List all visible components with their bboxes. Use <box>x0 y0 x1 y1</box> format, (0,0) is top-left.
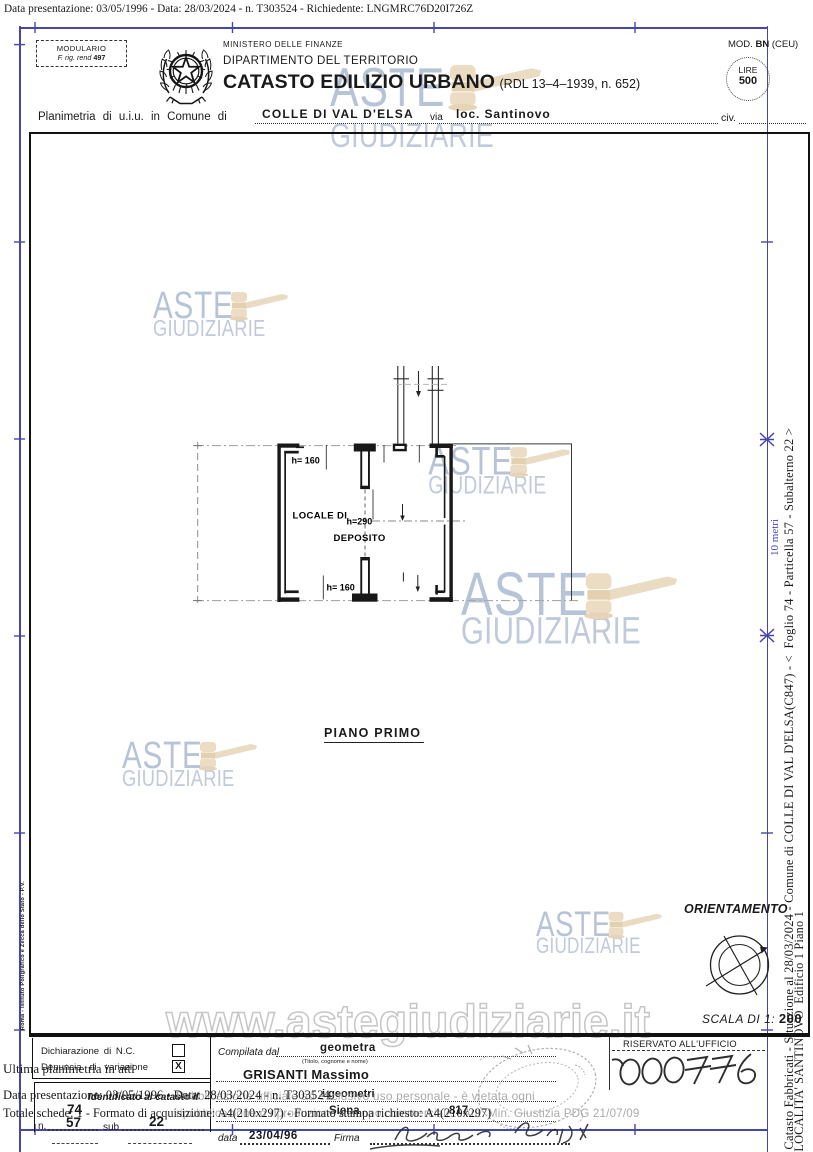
svg-text:h= 160: h= 160 <box>292 456 320 466</box>
svg-text:LOCALE DI: LOCALE DI <box>293 511 348 522</box>
svg-text:h= 160: h= 160 <box>327 583 355 593</box>
svg-text:h=290: h=290 <box>347 517 373 527</box>
svg-text:DEPOSITO: DEPOSITO <box>334 533 386 544</box>
